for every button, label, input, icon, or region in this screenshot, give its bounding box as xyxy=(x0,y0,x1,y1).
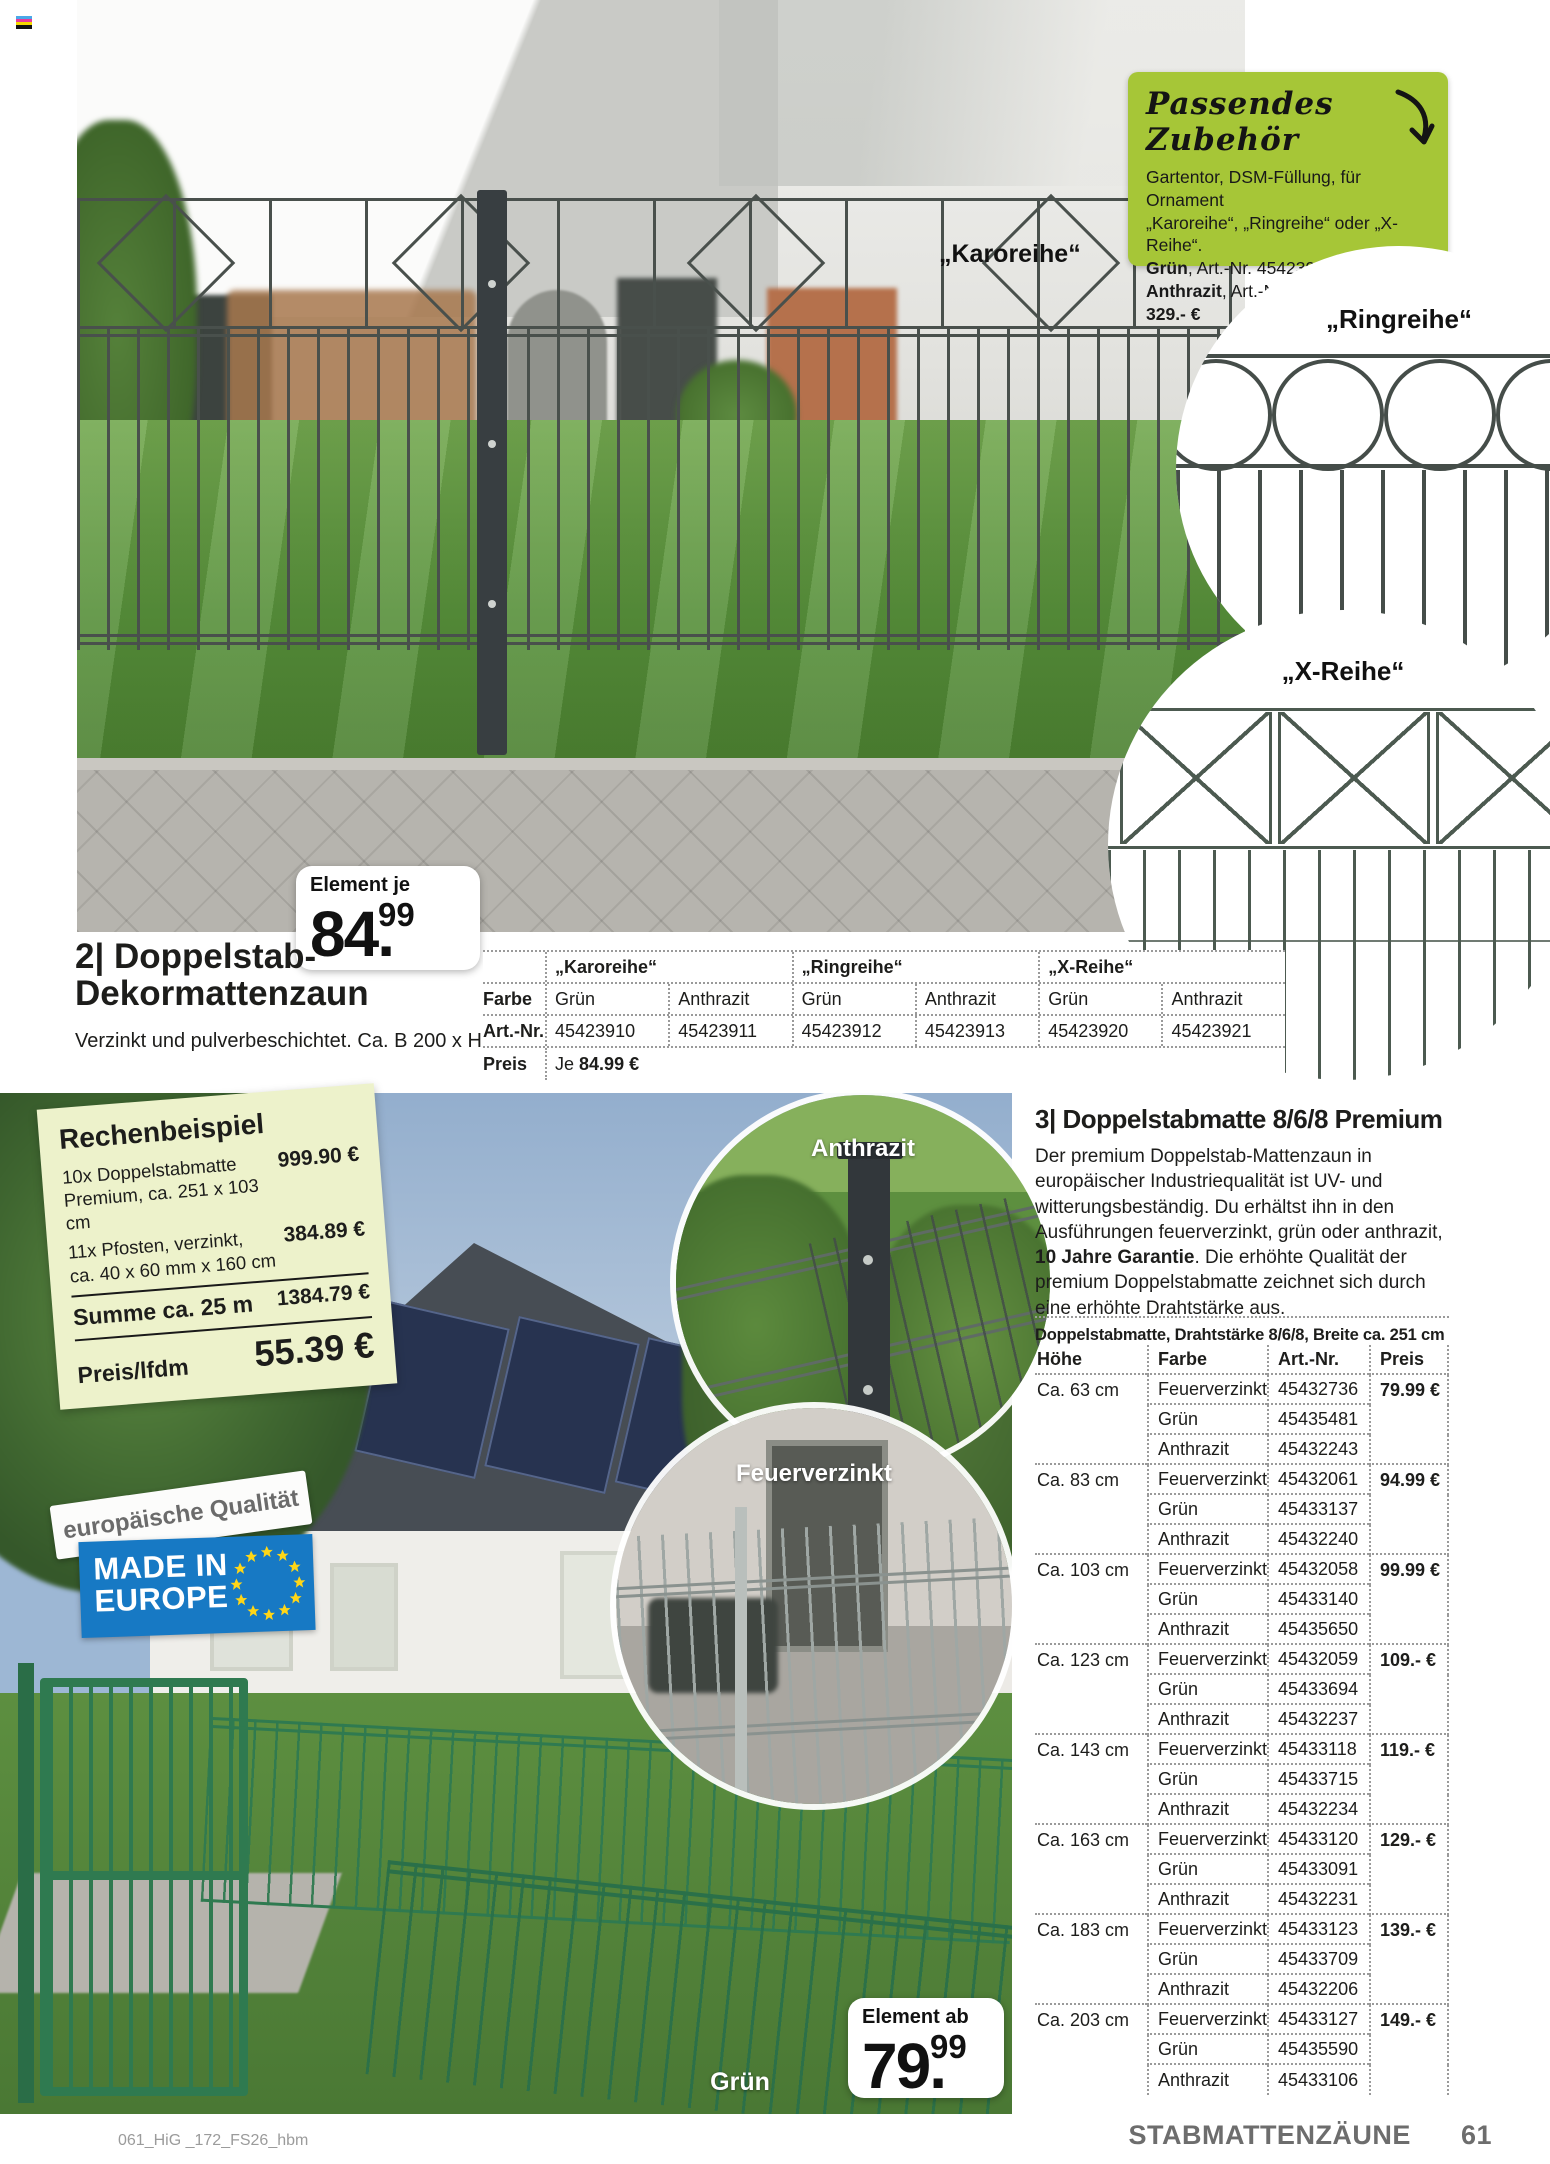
table-row: Ca. 103 cmFeuerverzinkt4543205899.99 € xyxy=(1035,1555,1449,1585)
farbe-cell: Anthrazit xyxy=(1147,1885,1267,1915)
farbe-cell: Grün xyxy=(1038,984,1161,1014)
badge-label: Element je xyxy=(310,874,468,897)
page-number: 61 xyxy=(1461,2120,1492,2151)
x-ornament xyxy=(1278,712,1430,844)
preis-cell: 99.99 € xyxy=(1369,1555,1449,1585)
hoehe-cell: Ca. 203 cm xyxy=(1035,2005,1147,2035)
table-row: Anthrazit45433106 xyxy=(1035,2065,1449,2095)
artnr-cell: 45433091 xyxy=(1267,1855,1369,1885)
row-label: Farbe xyxy=(483,989,545,1010)
artnr-cell: 45435650 xyxy=(1267,1615,1369,1645)
arrow-down-icon xyxy=(1394,88,1440,150)
table-row: Ca. 163 cmFeuerverzinkt45433120129.- € xyxy=(1035,1825,1449,1855)
table-row-groups: „Karoreihe“ „Ringreihe“ „X-Reihe“ xyxy=(483,952,1285,984)
calc-sum-row: Summe ca. 25 m 1384.79 € xyxy=(72,1280,371,1332)
fence-rail xyxy=(1108,708,1550,711)
preis-cell: 119.- € xyxy=(1369,1735,1449,1765)
farbe-cell: Grün xyxy=(1147,1675,1267,1705)
farbe-cell: Grün xyxy=(1147,2035,1267,2065)
pavement xyxy=(77,770,1245,932)
farbe-cell: Feuerverzinkt xyxy=(1147,1735,1267,1765)
product3-title: 3| Doppelstabmatte 8/6/8 Premium xyxy=(1035,1104,1442,1135)
table-row: Ca. 63 cmFeuerverzinkt4543273679.99 € xyxy=(1035,1375,1449,1405)
table-row: Anthrazit45432243 xyxy=(1035,1435,1449,1465)
artnr-cell: 45432736 xyxy=(1267,1375,1369,1405)
product2-title-line1: 2| Doppelstab- xyxy=(75,938,369,975)
preis-prefix: Je xyxy=(555,1054,574,1075)
artnr-cell: 45433709 xyxy=(1267,1945,1369,1975)
hoehe-cell: Ca. 63 cm xyxy=(1035,1375,1147,1405)
farbe-cell: Grün xyxy=(1147,1945,1267,1975)
price-badge-element-ab: Element ab 79.99 xyxy=(848,1998,1004,2098)
artnr-cell: 45433118 xyxy=(1267,1735,1369,1765)
badge-label: Element ab xyxy=(862,2006,992,2029)
farbe-cell: Anthrazit xyxy=(1147,1615,1267,1645)
preis-value: 84.99 € xyxy=(579,1054,639,1075)
table-row: Grün45433694 xyxy=(1035,1675,1449,1705)
farbe-cell: Anthrazit xyxy=(915,984,1038,1014)
artnr-cell: 45435481 xyxy=(1267,1405,1369,1435)
table-row: Anthrazit45432237 xyxy=(1035,1705,1449,1735)
artnr-cell: 45432231 xyxy=(1267,1885,1369,1915)
table-row: Anthrazit45435650 xyxy=(1035,1615,1449,1645)
calc-item1-price: 999.90 € xyxy=(277,1143,360,1173)
badge-price: 79.99 xyxy=(862,2031,992,2097)
row-label: Preis xyxy=(483,1054,545,1075)
product3-table-title: Doppelstabmatte, Drahtstärke 8/6/8, Brei… xyxy=(1035,1316,1449,1345)
calc-item2-label: 11x Pfosten, verzinkt,ca. 40 x 60 mm x 1… xyxy=(67,1225,277,1287)
ring-ornament xyxy=(1496,359,1550,471)
table-header-row: Höhe Farbe Art.-Nr. Preis xyxy=(1035,1345,1449,1375)
table-row: Grün45433137 xyxy=(1035,1495,1449,1525)
table-row: Grün45433091 xyxy=(1035,1855,1449,1885)
table-row: Ca. 183 cmFeuerverzinkt45433123139.- € xyxy=(1035,1915,1449,1945)
accessory-title: Passendes Zubehör xyxy=(1146,86,1430,158)
table-row: Grün45433709 xyxy=(1035,1945,1449,1975)
table-row: Ca. 203 cmFeuerverzinkt45433127149.- € xyxy=(1035,2005,1449,2035)
price-decimals: 99 xyxy=(930,2028,967,2065)
group-ringreihe: „Ringreihe“ xyxy=(792,952,1039,982)
table-row: Grün45435481 xyxy=(1035,1405,1449,1435)
anthracite-variant-label: Anthrazit xyxy=(1146,281,1222,301)
table-row-preis: Preis Je 84.99 € xyxy=(483,1048,1285,1080)
post-bolt xyxy=(863,1255,873,1265)
calc-sum-label: Summe ca. 25 m xyxy=(72,1289,254,1332)
x-ornament xyxy=(1436,712,1550,844)
ringreihe-label: „Ringreihe“ xyxy=(1176,304,1550,335)
farbe-cell: Grün xyxy=(1147,1765,1267,1795)
galvanized-post xyxy=(735,1507,747,1804)
rechenbeispiel-note: Rechenbeispiel 10x DoppelstabmattePremiu… xyxy=(37,1083,398,1410)
artnr-cell: 45432059 xyxy=(1267,1645,1369,1675)
farbe-cell: Anthrazit xyxy=(1147,1435,1267,1465)
preis-cell: 129.- € xyxy=(1369,1825,1449,1855)
farbe-cell: Grün xyxy=(1147,1855,1267,1885)
farbe-cell: Anthrazit xyxy=(1147,2065,1267,2095)
artnr-cell: 45433106 xyxy=(1267,2065,1369,2095)
main-photo-dekormattenzaun: „Karoreihe“ xyxy=(77,0,1245,932)
anthrazit-label: Anthrazit xyxy=(676,1135,1050,1163)
fence-post xyxy=(477,190,507,755)
hoehe-cell: Ca. 83 cm xyxy=(1035,1465,1147,1495)
farbe-cell: Feuerverzinkt xyxy=(1147,1915,1267,1945)
hoehe-cell: Ca. 123 cm xyxy=(1035,1645,1147,1675)
post-bolt xyxy=(863,1385,873,1395)
col-artnr: Art.-Nr. xyxy=(1267,1345,1369,1375)
accessory-line1: Gartentor, DSM-Füllung, für Ornament xyxy=(1146,167,1361,210)
calc-final-price: 55.39 € xyxy=(253,1324,376,1375)
product2-title: 2| Doppelstab- Dekormattenzaun xyxy=(75,938,369,1012)
table-row: Grün45433140 xyxy=(1035,1585,1449,1615)
farbe-cell: Feuerverzinkt xyxy=(1147,2005,1267,2035)
calc-sum-price: 1384.79 € xyxy=(276,1280,371,1311)
artnr-cell: 45423920 xyxy=(1038,1016,1161,1046)
col-farbe: Farbe xyxy=(1147,1345,1267,1375)
artnr-cell: 45432243 xyxy=(1267,1435,1369,1465)
artnr-cell: 45433123 xyxy=(1267,1915,1369,1945)
galvanized-fence xyxy=(616,1516,1012,1804)
table-row: Anthrazit45432234 xyxy=(1035,1795,1449,1825)
artnr-cell: 45432240 xyxy=(1267,1525,1369,1555)
col-preis: Preis xyxy=(1369,1345,1449,1375)
table-row: Anthrazit45432231 xyxy=(1035,1885,1449,1915)
hoehe-cell: Ca. 103 cm xyxy=(1035,1555,1147,1585)
farbe-cell: Grün xyxy=(1147,1405,1267,1435)
farbe-cell: Grün xyxy=(545,984,668,1014)
farbe-cell: Grün xyxy=(792,984,915,1014)
artnr-cell: 45423913 xyxy=(915,1016,1038,1046)
farbe-cell: Anthrazit xyxy=(1147,1525,1267,1555)
section-title: STABMATTENZÄUNE xyxy=(1128,2120,1410,2151)
farbe-cell: Grün xyxy=(1147,1585,1267,1615)
feuerverzinkt-label: Feuerverzinkt xyxy=(616,1460,1012,1488)
preis-cell: 109.- € xyxy=(1369,1645,1449,1675)
made-in-europe-badge: MADE IN EUROPE xyxy=(78,1534,315,1638)
calc-final-row: Preis/lfdm 55.39 € xyxy=(76,1324,376,1390)
fence-rail xyxy=(1108,846,1550,849)
karoreihe-label: „Karoreihe“ xyxy=(939,240,1081,269)
table-row: Grün45435590 xyxy=(1035,2035,1449,2065)
fence-rail xyxy=(1176,464,1550,468)
artnr-cell: 45433140 xyxy=(1267,1585,1369,1615)
catalog-page: „Karoreihe“ Passendes Zubehör Gartentor,… xyxy=(0,0,1550,2164)
price-integer: 79 xyxy=(862,2030,929,2102)
desc-text: Der premium Doppelstab-Mattenzaun in eur… xyxy=(1035,1146,1443,1243)
product3-description: Der premium Doppelstab-Mattenzaun in eur… xyxy=(1035,1144,1451,1321)
artnr-cell: 45432234 xyxy=(1267,1795,1369,1825)
preis-cell: 94.99 € xyxy=(1369,1465,1449,1495)
product2-table: „Karoreihe“ „Ringreihe“ „X-Reihe“ Farbe … xyxy=(483,950,1285,1080)
eu-stars-icon xyxy=(222,1538,313,1629)
ring-ornament xyxy=(1384,359,1496,471)
table-row: Anthrazit45432206 xyxy=(1035,1975,1449,2005)
col-hoehe: Höhe xyxy=(1035,1345,1147,1375)
fence-rail xyxy=(1176,354,1550,358)
hoehe-cell: Ca. 183 cm xyxy=(1035,1915,1147,1945)
gate-post xyxy=(18,1663,34,2103)
x-ornament xyxy=(1120,712,1272,844)
preis-cell: 79.99 € xyxy=(1369,1375,1449,1405)
product3-table: Höhe Farbe Art.-Nr. Preis Ca. 63 cmFeuer… xyxy=(1035,1345,1449,2095)
calc-item1-label: 10x DoppelstabmattePremium, ca. 251 x 10… xyxy=(61,1149,282,1235)
farbe-cell: Feuerverzinkt xyxy=(1147,1375,1267,1405)
table-row-farbe: Farbe Grün Anthrazit Grün Anthrazit Grün… xyxy=(483,984,1285,1016)
hoehe-cell: Ca. 163 cm xyxy=(1035,1825,1147,1855)
footer-file-code: 061_HiG _172_FS26_hbm xyxy=(118,2132,308,2150)
green-variant-label: Grün xyxy=(1146,258,1188,278)
farbe-cell: Grün xyxy=(1147,1495,1267,1525)
product2-title-line2: Dekormattenzaun xyxy=(75,975,369,1012)
artnr-cell: 45432061 xyxy=(1267,1465,1369,1495)
artnr-cell: 45423912 xyxy=(792,1016,915,1046)
ring-ornament xyxy=(1272,359,1384,471)
xreihe-label: „X-Reihe“ xyxy=(1108,656,1550,687)
hoehe-cell: Ca. 143 cm xyxy=(1035,1735,1147,1765)
farbe-cell: Anthrazit xyxy=(668,984,791,1014)
artnr-cell: 45423921 xyxy=(1161,1016,1284,1046)
preis-cell: 149.- € xyxy=(1369,2005,1449,2035)
desc-guarantee: 10 Jahre Garantie xyxy=(1035,1247,1194,1268)
farbe-cell: Anthrazit xyxy=(1161,984,1284,1014)
price-decimals: 99 xyxy=(378,896,415,933)
artnr-cell: 45433715 xyxy=(1267,1765,1369,1795)
table-row: Ca. 83 cmFeuerverzinkt4543206194.99 € xyxy=(1035,1465,1449,1495)
farbe-cell: Anthrazit xyxy=(1147,1795,1267,1825)
artnr-cell: 45433137 xyxy=(1267,1495,1369,1525)
table-row: Anthrazit45432240 xyxy=(1035,1525,1449,1555)
artnr-cell: 45432206 xyxy=(1267,1975,1369,2005)
farbe-cell: Feuerverzinkt xyxy=(1147,1555,1267,1585)
group-karoreihe: „Karoreihe“ xyxy=(545,952,792,982)
artnr-cell: 45423910 xyxy=(545,1016,668,1046)
artnr-cell: 45433694 xyxy=(1267,1675,1369,1705)
calc-item2-price: 384.89 € xyxy=(283,1218,366,1248)
registration-mark-icon xyxy=(16,16,32,29)
gruen-label: Grün xyxy=(660,2068,820,2097)
artnr-cell: 45432058 xyxy=(1267,1555,1369,1585)
calc-final-label: Preis/lfdm xyxy=(77,1353,190,1390)
ring-ornament xyxy=(1176,359,1272,471)
row-label: Art.-Nr. xyxy=(483,1021,545,1042)
footer-section: STABMATTENZÄUNE 61 xyxy=(1128,2120,1492,2151)
group-xreihe: „X-Reihe“ xyxy=(1038,952,1285,982)
farbe-cell: Anthrazit xyxy=(1147,1975,1267,2005)
farbe-cell: Anthrazit xyxy=(1147,1705,1267,1735)
window xyxy=(330,1563,398,1671)
artnr-cell: 45423911 xyxy=(668,1016,791,1046)
table-row: Ca. 143 cmFeuerverzinkt45433118119.- € xyxy=(1035,1735,1449,1765)
preis-cell: 139.- € xyxy=(1369,1915,1449,1945)
accessory-box: Passendes Zubehör Gartentor, DSM-Füllung… xyxy=(1128,72,1448,266)
table-row-artnr: Art.-Nr. 45423910 45423911 45423912 4542… xyxy=(483,1016,1285,1048)
farbe-cell: Feuerverzinkt xyxy=(1147,1645,1267,1675)
table-row: Grün45433715 xyxy=(1035,1765,1449,1795)
table-row: Ca. 123 cmFeuerverzinkt45432059109.- € xyxy=(1035,1645,1449,1675)
fence-bars xyxy=(77,328,1245,650)
artnr-cell: 45432237 xyxy=(1267,1705,1369,1735)
artnr-cell: 45433120 xyxy=(1267,1825,1369,1855)
fence-wire xyxy=(1108,940,1550,942)
artnr-cell: 45435590 xyxy=(1267,2035,1369,2065)
farbe-cell: Feuerverzinkt xyxy=(1147,1825,1267,1855)
preis-cell: Je 84.99 € xyxy=(545,1048,1285,1080)
feuerverzinkt-inset: Feuerverzinkt xyxy=(616,1408,1012,1804)
farbe-cell: Feuerverzinkt xyxy=(1147,1465,1267,1495)
artnr-cell: 45433127 xyxy=(1267,2005,1369,2035)
